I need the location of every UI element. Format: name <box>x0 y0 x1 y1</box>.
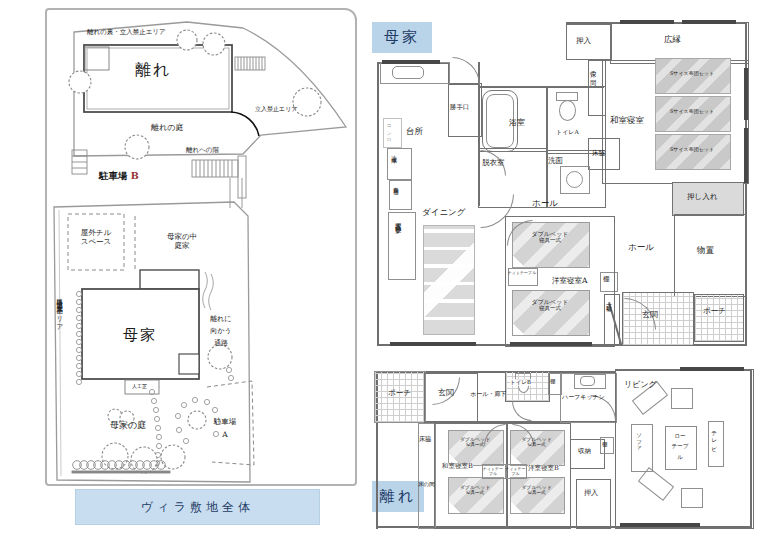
kitchen-sink-basin <box>580 376 595 386</box>
bed-b2 <box>448 477 504 514</box>
shelf-label: 棚 <box>603 276 610 284</box>
parking-a-text: 駐車場 <box>207 416 243 429</box>
geta-box-label: 下駄箱 <box>606 300 613 340</box>
fireplace-label: 大理石偽暖炉 <box>395 217 402 275</box>
bed-a2 <box>512 290 590 336</box>
bed-label: ダブルベッド 寝具一式 <box>512 298 588 312</box>
hanare-title-box: 離れ <box>372 481 424 512</box>
gate-arc <box>231 112 259 136</box>
futon-label: Sサイズ布団セット <box>655 70 729 76</box>
hanare-stairs-drawing <box>192 156 246 198</box>
bed-label-line2: 寝具一式 <box>510 442 563 447</box>
label-omoya-building: 母家 <box>123 326 157 344</box>
room-label-yoshitsu-a: 洋室寝室A <box>552 276 587 285</box>
bed-label: ダブルベッド 寝具一式 <box>512 230 588 244</box>
label-hanare-garden: 離れの庭 <box>151 123 183 133</box>
window-bar <box>682 20 736 24</box>
room-label-washstand: 洗面 <box>548 156 563 165</box>
door-arc <box>452 57 480 85</box>
bed-label-line1: ダブルベッド <box>512 298 588 305</box>
room-storage <box>674 214 746 297</box>
window-bar <box>680 367 744 371</box>
to-hanare-line3: 通路 <box>203 338 239 350</box>
label-hanare-stairs: 離れへの階 <box>186 147 219 155</box>
label-parking-b: 駐車場 B <box>99 170 139 181</box>
room-label-entrance: 玄関 <box>438 388 454 398</box>
washstand-basin <box>566 171 583 188</box>
room-label-entrance: 玄関 <box>642 310 658 320</box>
room-label-hall-upper: ホール <box>532 198 558 208</box>
tv-label: テレビ <box>711 427 718 459</box>
room-label-tokowaki: 床脇 <box>419 435 431 442</box>
to-hanare-line2: 向かう <box>203 326 239 338</box>
parking-b-text: 駐車場 <box>99 170 128 181</box>
chill-line1: 屋外チル <box>72 228 120 237</box>
futon-2 <box>655 96 731 132</box>
stove-label: コンロ <box>386 121 392 145</box>
label-turf: 人工芝 <box>132 383 147 389</box>
hanare-floorplan: 離れ <box>372 365 760 537</box>
site-caption: ヴィラ敷地全体 <box>75 489 320 525</box>
futon-1 <box>655 58 731 94</box>
room-label-porch: ポーチ <box>388 388 411 397</box>
room-label-kitchen: 台所 <box>406 126 423 136</box>
room-label-back-door: 勝手口 <box>450 104 470 112</box>
bed-label-line2: 寝具一式 <box>448 442 502 447</box>
dining-table <box>423 225 475 335</box>
squiggle-path <box>203 272 214 310</box>
room-porch <box>374 371 426 423</box>
room-label-bath: 浴室 <box>509 118 525 128</box>
chair <box>671 388 693 409</box>
toilet-bowl-icon <box>559 100 576 121</box>
room-label-porch: ポーチ <box>703 306 726 315</box>
page: 離れの裏・立入禁止エリア 離れ 立入禁止エリア 離れの庭 離れへの階 駐車場 B… <box>0 0 760 537</box>
kitchen-sink <box>392 66 424 79</box>
wall <box>377 62 379 346</box>
night-table-label: ナイトテーブル <box>481 467 505 477</box>
label-courtyard: 母家の中 庭家 <box>159 232 205 250</box>
chill-line2: スペース <box>72 237 120 246</box>
bed-label-line2: 寝具一式 <box>512 305 588 312</box>
futon-label: Sサイズ布団セット <box>655 108 729 114</box>
label-chill-space: 屋外チル スペース <box>72 228 120 246</box>
label-omoya-garden: 母家の庭 <box>110 420 146 431</box>
bed-b4 <box>510 477 565 514</box>
omoya-floorplan: 母家 <box>370 10 760 362</box>
room-label-dressing: 脱衣室 <box>482 158 505 167</box>
bed-label-line2: 寝具一式 <box>512 237 588 244</box>
label-hanare-building: 離れ <box>135 60 171 79</box>
room-label-living: リビング <box>624 380 657 390</box>
bed-label-line1: ダブルベッド <box>512 230 588 237</box>
bed-label-line2: 寝具一式 <box>448 490 502 495</box>
window-bar <box>390 342 476 346</box>
bed-label: ダブルベッド 寝具一式 <box>510 436 563 447</box>
room-porch <box>694 294 744 342</box>
room-label-washitsu: 和室寝室 <box>610 115 644 125</box>
courtyard-line1: 母家の中 <box>159 232 205 241</box>
room-oshiire <box>576 479 611 529</box>
room-label-toilet-b: トイレB <box>510 379 531 386</box>
room-label-hiroen: 広縁 <box>664 34 681 44</box>
site-caption-text: ヴィラ敷地全体 <box>141 499 254 516</box>
window-bar <box>510 342 592 346</box>
room-label-oshiire: 押し入れ <box>687 192 717 201</box>
room-label-half-kitchen: ハーフキッチン <box>562 393 605 400</box>
window-bar <box>620 523 700 527</box>
window-bar <box>620 20 674 24</box>
omoya-building-outline <box>82 270 199 379</box>
label-parking-a: 駐車場 A <box>207 416 243 442</box>
parking-b-letter: B <box>131 170 139 181</box>
upper-stairs <box>235 57 265 70</box>
room-label-oshiire: 押入 <box>584 489 598 497</box>
cupboard-label: 食器棚 <box>393 183 400 207</box>
room-label-oshiire-top: 押入 <box>576 36 591 45</box>
sofa-label: ソファ <box>636 429 643 465</box>
window-bar <box>744 68 748 120</box>
chair <box>681 488 703 508</box>
room-label-washitsu-b: 和室寝室B <box>442 463 473 471</box>
shelf-label: 棚 <box>550 378 556 385</box>
bed-label-line2: 寝具一式 <box>510 490 563 495</box>
low-table-line1: ロー <box>666 431 694 441</box>
window-bar <box>744 128 748 183</box>
bed-label: ダブルベッド 寝具一式 <box>510 484 563 495</box>
label-no-entry: 立入禁止エリア <box>255 105 297 112</box>
low-table-label: ロー テーブ ル <box>666 431 694 462</box>
room-label-storage: 物置 <box>697 245 714 255</box>
low-table-line2: テーブ <box>666 441 694 451</box>
omoya-title-box: 母家 <box>372 22 432 53</box>
room-label-tokonoma: 床の間 <box>590 66 597 110</box>
low-table-line3: ル <box>666 452 694 462</box>
site-plan-panel: 離れの裏・立入禁止エリア 離れ 立入禁止エリア 離れの庭 離れへの階 駐車場 B… <box>45 8 357 486</box>
night-table-label: ナイトテーブル <box>505 467 526 477</box>
room-label-storage: 収納 <box>578 448 591 456</box>
room-label-tokowaki: 床脇 <box>592 150 605 158</box>
room-label-hall-lower: ホール <box>628 242 654 252</box>
room-label-dining: ダイニング <box>422 207 466 217</box>
fridge-label: 冷蔵庫 <box>391 151 398 177</box>
courtyard-line2: 庭家 <box>159 241 205 250</box>
room-label-hall: ホール・廊下 <box>470 390 506 397</box>
parking-a-letter: A <box>207 429 243 442</box>
window-bar <box>382 60 440 64</box>
room-label-toilet-a: トイレA <box>556 128 579 135</box>
shelf-label: 棚 <box>602 441 608 448</box>
futon-3 <box>655 134 731 170</box>
bed-label: ダブルベッド 寝具一式 <box>448 484 502 495</box>
room-label-tokonoma: 床の間 <box>418 481 435 488</box>
door-arc <box>512 401 532 421</box>
label-side-path: 勝手口通路・立入禁止エリア <box>55 293 63 473</box>
to-hanare-line1: 離れに <box>203 314 239 326</box>
bed-label: ダブルベッド 寝具一式 <box>448 436 502 447</box>
label-to-hanare: 離れに 向かう 通路 <box>203 314 239 350</box>
night-table-label: ナイトテーブル <box>507 271 537 276</box>
room-label-yoshitsu-b: 洋室寝室B <box>528 465 559 473</box>
futon-label: Sサイズ布団セット <box>655 146 729 152</box>
label-hanare-back: 離れの裏・立入禁止エリア <box>87 29 166 37</box>
